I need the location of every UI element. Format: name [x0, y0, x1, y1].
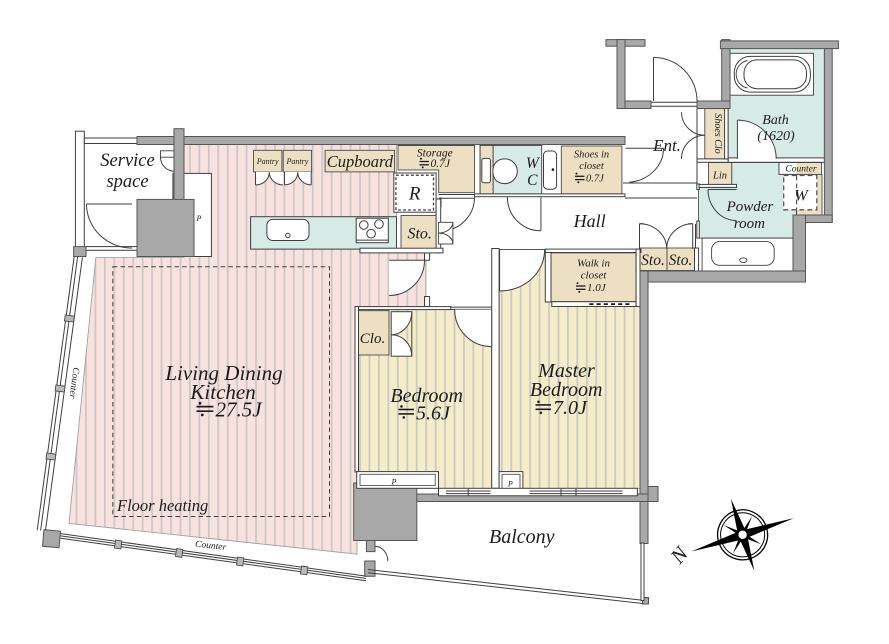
svg-text:(1620): (1620)	[757, 129, 795, 144]
svg-text:Hall: Hall	[573, 211, 606, 231]
svg-text:Sto.: Sto.	[669, 252, 693, 269]
svg-text:7.0J: 7.0J	[553, 397, 588, 419]
svg-text:W: W	[794, 188, 809, 205]
svg-text:Pantry: Pantry	[256, 157, 279, 166]
svg-text:Bath: Bath	[762, 113, 788, 128]
svg-text:P: P	[390, 478, 396, 487]
svg-text:Sto.: Sto.	[641, 252, 665, 269]
svg-text:Shoes in: Shoes in	[574, 150, 609, 161]
svg-text:Cupboard: Cupboard	[327, 152, 394, 171]
svg-text:Floor heating: Floor heating	[116, 496, 208, 515]
svg-text:Ent.: Ent.	[652, 136, 681, 155]
svg-text:Clo.: Clo.	[360, 331, 385, 347]
svg-text:W: W	[526, 155, 541, 172]
svg-text:1.0J: 1.0J	[587, 282, 607, 294]
svg-text:0.7J: 0.7J	[431, 158, 451, 170]
svg-text:P: P	[507, 480, 513, 489]
svg-text:Walk in: Walk in	[577, 258, 610, 270]
svg-text:Powder: Powder	[726, 199, 774, 215]
svg-text:Service: Service	[100, 151, 154, 171]
svg-text:R: R	[408, 184, 421, 205]
svg-text:5.6J: 5.6J	[416, 403, 451, 425]
svg-text:Pantry: Pantry	[286, 157, 309, 166]
svg-text:space: space	[106, 172, 148, 192]
svg-text:Balcony: Balcony	[489, 526, 555, 548]
svg-text:27.5J: 27.5J	[216, 398, 264, 422]
svg-text:Counter: Counter	[785, 165, 816, 175]
svg-text:room: room	[734, 216, 765, 232]
svg-text:Lin: Lin	[712, 171, 727, 182]
svg-text:Shoes Clo: Shoes Clo	[712, 113, 723, 153]
svg-text:closet: closet	[581, 270, 608, 282]
svg-text:P: P	[196, 214, 202, 223]
svg-text:C: C	[527, 172, 538, 189]
svg-text:0.7J: 0.7J	[586, 174, 605, 185]
svg-text:Sto.: Sto.	[407, 226, 431, 243]
svg-text:closet: closet	[579, 161, 605, 172]
